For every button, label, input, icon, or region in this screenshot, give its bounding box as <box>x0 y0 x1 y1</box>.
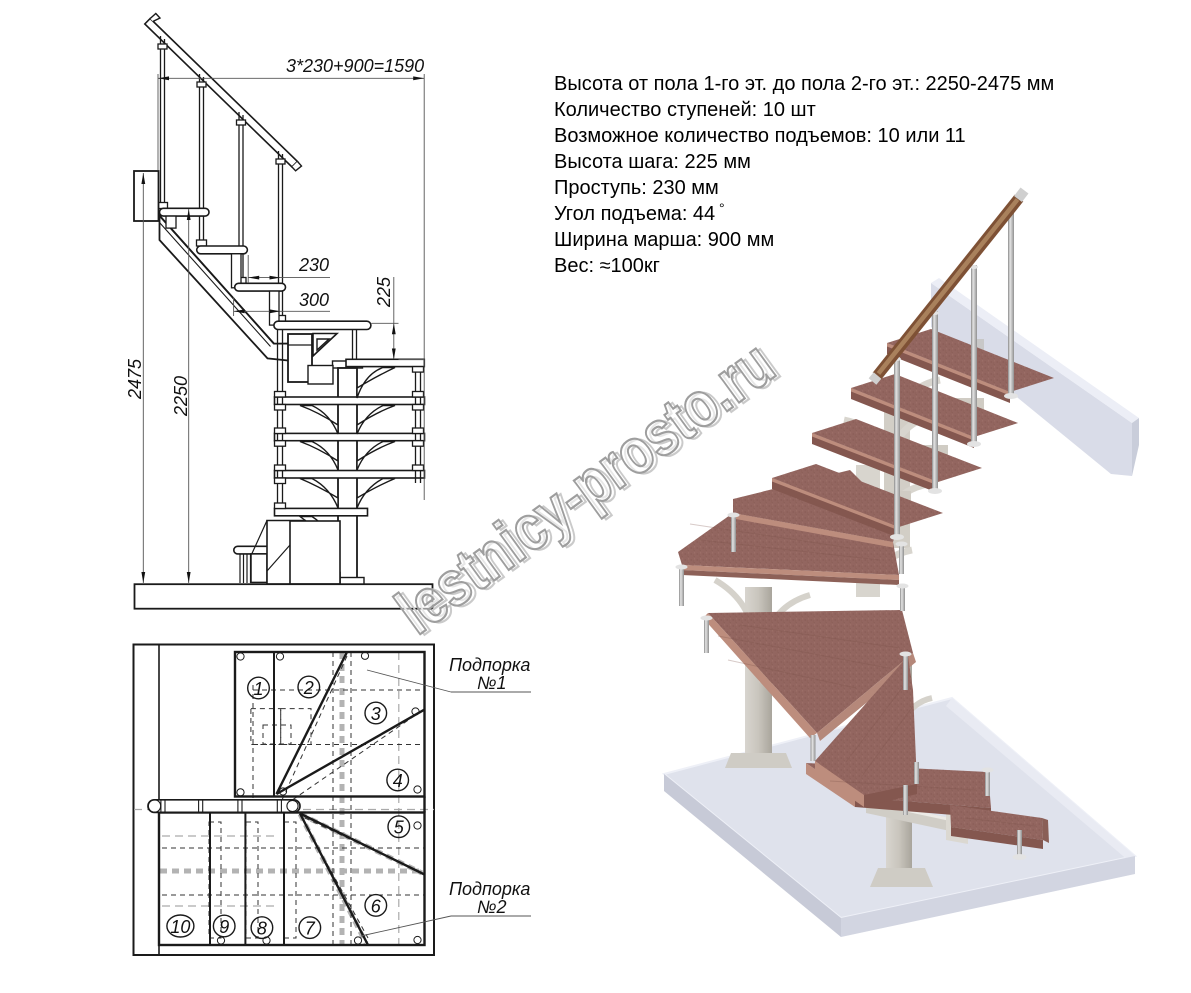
svg-text:Возможное количество подъемов:: Возможное количество подъемов: 10 или 11 <box>554 125 966 147</box>
svg-text:lestnicy-prosto.ru: lestnicy-prosto.ru <box>383 327 787 648</box>
svg-text:225: 225 <box>374 276 394 308</box>
svg-text:Ширина марша: 900 мм: Ширина марша: 900 мм <box>554 229 774 251</box>
svg-text:4: 4 <box>393 771 403 791</box>
svg-text:5: 5 <box>394 818 405 838</box>
svg-text:3: 3 <box>371 704 381 724</box>
svg-text:3*230+900=1590: 3*230+900=1590 <box>286 56 424 76</box>
svg-text:2: 2 <box>303 678 314 698</box>
svg-text:Подпорка: Подпорка <box>449 879 530 899</box>
svg-text:Высота от пола 1-го эт. до пол: Высота от пола 1-го эт. до пола 2-го эт.… <box>554 73 1054 95</box>
svg-text:230: 230 <box>298 255 329 275</box>
svg-text:Количество ступеней: 10 шт: Количество ступеней: 10 шт <box>554 99 816 121</box>
svg-text:10: 10 <box>170 917 190 937</box>
svg-text:№1: №1 <box>477 673 507 693</box>
svg-text:Проступь: 230 мм: Проступь: 230 мм <box>554 177 719 199</box>
svg-text:№2: №2 <box>477 897 507 917</box>
svg-text:Угол подъема: 44 °: Угол подъема: 44 ° <box>554 200 725 225</box>
svg-text:Высота шага: 225 мм: Высота шага: 225 мм <box>554 151 751 173</box>
svg-text:1: 1 <box>253 679 263 699</box>
svg-text:Подпорка: Подпорка <box>449 655 530 675</box>
svg-text:Вес: ≈100кг: Вес: ≈100кг <box>554 255 660 277</box>
svg-text:8: 8 <box>257 919 267 939</box>
svg-text:300: 300 <box>299 290 329 310</box>
svg-text:2475: 2475 <box>125 358 145 400</box>
svg-text:6: 6 <box>371 896 382 916</box>
svg-text:9: 9 <box>219 917 229 937</box>
svg-text:7: 7 <box>305 919 316 939</box>
svg-text:2250: 2250 <box>171 376 191 417</box>
